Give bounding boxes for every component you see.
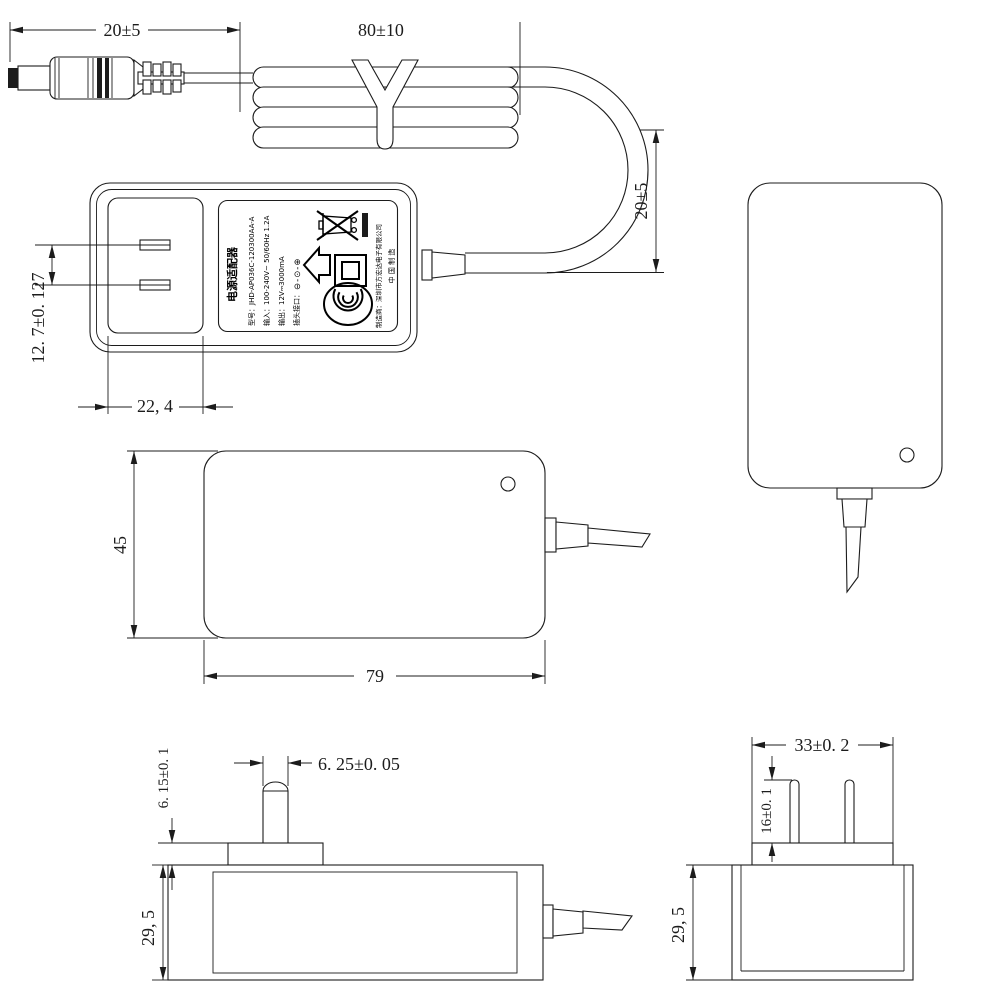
dim-blade-pitch: 12. 7±0. 127: [28, 273, 48, 364]
dim-blade-width: 6. 25±0. 05: [234, 754, 400, 786]
label-product-name: 电源适配器: [225, 246, 239, 302]
cut-wire: [846, 527, 861, 592]
blade-pin-left: [790, 780, 799, 843]
dimensional-drawing-page: 20±5 80±10: [0, 0, 1000, 1000]
svg-text:6. 15±0. 1: 6. 15±0. 1: [156, 748, 172, 809]
dim-plug-cable-length: 20±5: [104, 20, 141, 40]
dim-body-depth-side: 29, 5: [138, 865, 168, 980]
plug-base-side: [228, 843, 323, 865]
label-model: 型号：JHD-AP036C-120300AA-A: [247, 216, 256, 326]
dc-plug: [8, 57, 253, 99]
label-made-in: 中 国 制 造: [387, 249, 396, 284]
cable-strain-relief: [556, 522, 588, 549]
body-end: [732, 865, 913, 980]
adapter-dimensional-drawing: 20±5 80±10: [0, 0, 1000, 1000]
dim-coiled-cable-length: 80±10: [358, 20, 404, 40]
label-output: 输出：12V⎓3000mA: [277, 256, 286, 326]
dc-plug-tip: [8, 68, 18, 88]
side-view: 6. 25±0. 05 6. 15±0. 1 29, 5: [138, 748, 632, 980]
cable-strain-relief: [432, 252, 465, 278]
back-view-vertical: [748, 183, 942, 592]
back-view-horizontal: 45 79: [110, 451, 650, 686]
body-side: [168, 865, 543, 980]
cable-coil: [253, 60, 518, 149]
rating-label: 电源适配器 型号：JHD-AP036C-120300AA-A 输入：100-24…: [219, 201, 398, 332]
cable-stub: [543, 905, 553, 938]
plug-base-end: [752, 843, 893, 865]
front-view: 12. 7±0. 127 22, 4 电源适配器 型号：JHD-AP036C-1…: [28, 183, 465, 416]
weee-bar: [362, 213, 368, 237]
svg-text:29, 5: 29, 5: [138, 910, 158, 946]
svg-text:45: 45: [110, 536, 130, 554]
svg-text:6. 25±0. 05: 6. 25±0. 05: [318, 754, 400, 774]
label-input: 输入：100-240V~ 50/60Hz 1.2A: [262, 215, 271, 326]
dim-body-height: 45: [110, 451, 218, 638]
cut-wire: [583, 911, 632, 930]
cable-strain-relief: [842, 499, 867, 527]
label-manufacturer: 制造商：深圳市方宏达电子有限公司: [374, 224, 383, 328]
dim-cable-loop-height: 20±5: [631, 183, 651, 220]
dim-plug-base-front-width: 22, 4: [137, 396, 173, 416]
polarity-icon: ⊖-⊙-⊕: [293, 257, 303, 290]
plug-strain-relief: [138, 62, 184, 94]
dim-body-depth-end: 29, 5: [668, 865, 732, 980]
cable-stub: [837, 488, 872, 499]
cable-strain-relief: [553, 909, 583, 936]
cable-stub: [545, 518, 556, 552]
dim-body-length: 79: [204, 640, 545, 686]
end-view: 33±0. 2 16±0. 1 29, 5: [668, 735, 913, 980]
svg-text:29, 5: 29, 5: [668, 907, 688, 943]
svg-text:33±0. 2: 33±0. 2: [795, 735, 850, 755]
svg-text:79: 79: [366, 666, 384, 686]
cut-wire: [588, 528, 650, 547]
cable-entry-stub: [422, 250, 432, 280]
label-port: 插头接口：: [292, 291, 301, 326]
blade-pin-right: [845, 780, 854, 843]
svg-text:16±0. 1: 16±0. 1: [759, 788, 775, 834]
